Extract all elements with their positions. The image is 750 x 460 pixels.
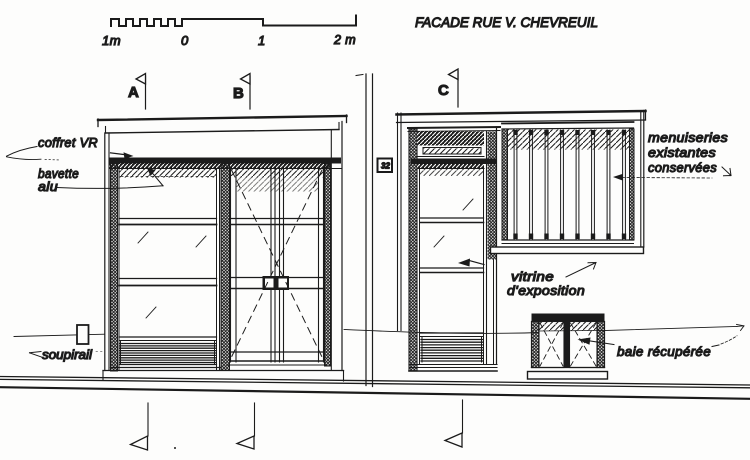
svg-text:1: 1 xyxy=(258,33,266,48)
svg-text:0: 0 xyxy=(181,33,189,48)
svg-text:1m: 1m xyxy=(102,33,121,48)
svg-text:2 m: 2 m xyxy=(333,32,356,47)
svg-text:B: B xyxy=(233,85,244,102)
svg-text:conservées: conservées xyxy=(648,160,717,175)
svg-text:alu: alu xyxy=(38,179,58,194)
svg-text:d'exposition: d'exposition xyxy=(507,283,585,298)
svg-text:coffret VR: coffret VR xyxy=(38,135,98,150)
svg-text:32: 32 xyxy=(381,162,390,171)
svg-text:baie récupérée: baie récupérée xyxy=(617,344,711,359)
svg-text:FACADE RUE V. CHEVREUIL: FACADE RUE V. CHEVREUIL xyxy=(415,14,598,30)
svg-text:soupirail: soupirail xyxy=(42,348,93,362)
svg-text:menuiseries: menuiseries xyxy=(648,130,728,145)
svg-text:existantes: existantes xyxy=(648,145,716,160)
svg-text:A: A xyxy=(128,84,139,101)
svg-text:C: C xyxy=(438,82,449,99)
svg-text:vitrine: vitrine xyxy=(511,269,554,284)
